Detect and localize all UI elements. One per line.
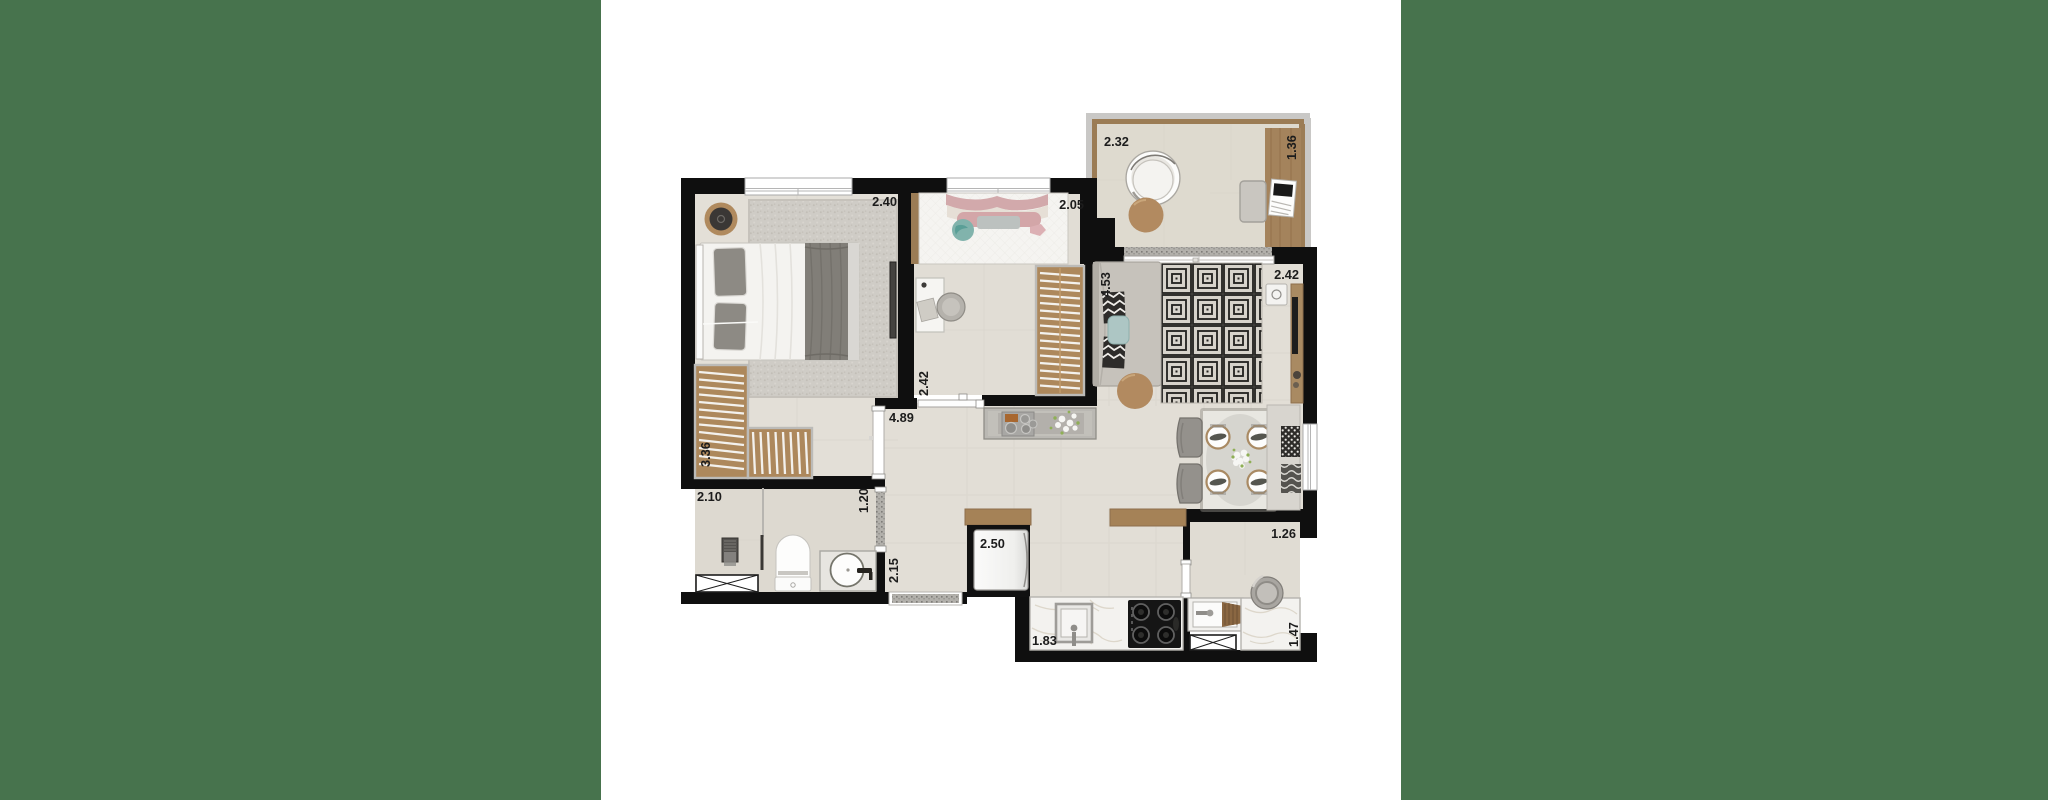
svg-text:1.36: 1.36 bbox=[1284, 135, 1299, 160]
svg-text:2.42: 2.42 bbox=[1274, 267, 1299, 282]
svg-text:2.42: 2.42 bbox=[916, 371, 931, 396]
svg-text:1.83: 1.83 bbox=[1032, 633, 1057, 648]
svg-text:2.15: 2.15 bbox=[886, 558, 901, 583]
svg-text:2.40: 2.40 bbox=[872, 194, 897, 209]
svg-text:2.50: 2.50 bbox=[980, 536, 1005, 551]
svg-text:2.10: 2.10 bbox=[697, 489, 722, 504]
svg-text:1.20: 1.20 bbox=[856, 488, 871, 513]
svg-text:2.05: 2.05 bbox=[1059, 197, 1084, 212]
svg-text:1.47: 1.47 bbox=[1286, 622, 1301, 647]
svg-text:3.36: 3.36 bbox=[698, 442, 713, 467]
svg-text:1.26: 1.26 bbox=[1271, 526, 1296, 541]
svg-text:2.32: 2.32 bbox=[1104, 134, 1129, 149]
svg-text:4.53: 4.53 bbox=[1098, 272, 1113, 297]
svg-text:4.89: 4.89 bbox=[889, 410, 914, 425]
